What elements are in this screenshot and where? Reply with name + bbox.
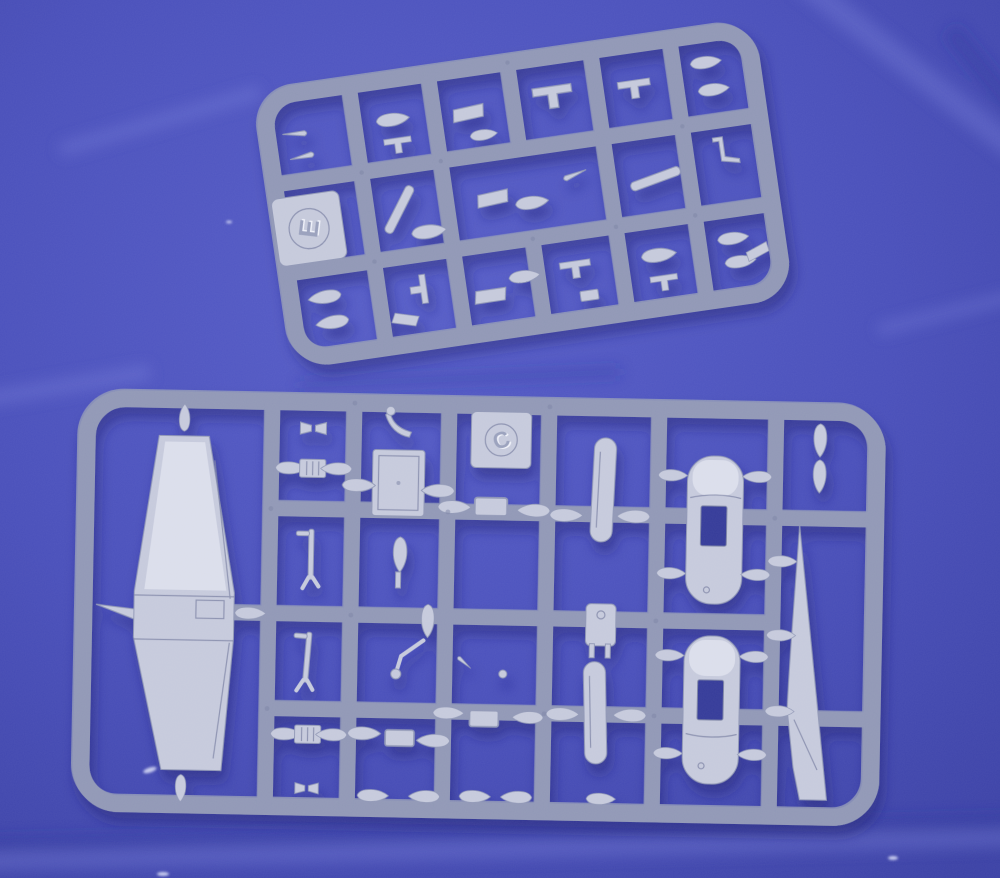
- photo-stage: E E: [0, 0, 1000, 878]
- fabric-grain-overlay: [0, 0, 1000, 878]
- sprue-photo: E E: [0, 0, 1000, 878]
